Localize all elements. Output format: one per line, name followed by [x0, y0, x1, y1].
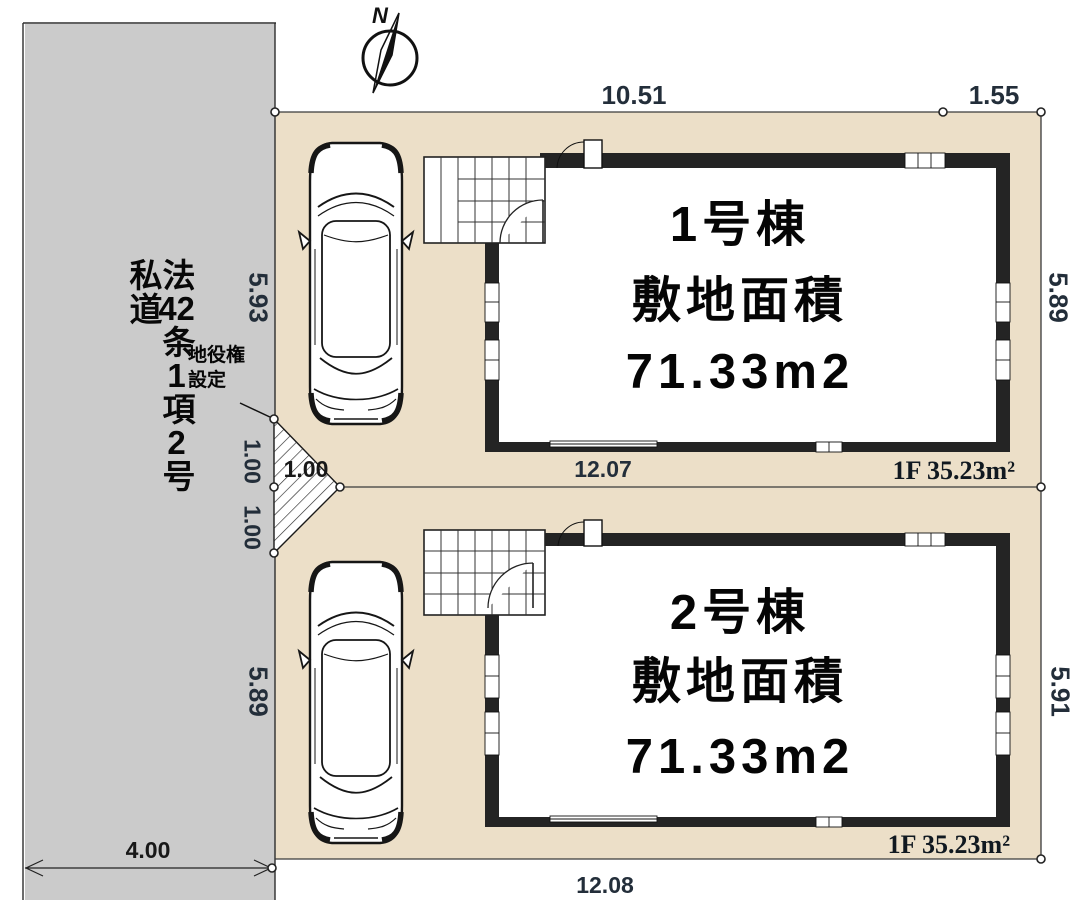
dim-site-bottom: 12.08: [555, 872, 655, 899]
lot2-area-value: 71.33m2: [440, 733, 1040, 782]
dim-top-main: 10.51: [584, 80, 684, 111]
car-1: [299, 143, 413, 424]
easement-label: 地役権 設定: [188, 344, 245, 393]
dim-lot1-east: 5.89: [1043, 248, 1074, 348]
dim-easement-side-2: 1.00: [239, 488, 266, 568]
north-label: N: [372, 3, 388, 29]
dim-road-width: 4.00: [98, 837, 198, 864]
lot2-area-caption: 敷地面積: [440, 658, 1040, 707]
dim-easement-width: 1.00: [266, 456, 346, 483]
dim-lot1-bottom: 12.07: [553, 456, 653, 483]
lot2-name: 2号棟: [440, 589, 1040, 638]
dim-top-offset: 1.55: [944, 80, 1044, 111]
car-2: [299, 562, 413, 843]
dim-lot1-west: 5.93: [243, 248, 274, 348]
lot1-area-value: 71.33m2: [440, 348, 1040, 397]
road-designation-label: 法42条1項2号私道: [127, 258, 193, 493]
lot2-floor-area: 1F 35.23m²: [810, 830, 1010, 860]
site-plan-canvas: N 10.51 1.55 5.93 5.89 5.89 5.91 1.00 1.…: [0, 0, 1090, 900]
lot1-floor-area: 1F 35.23m²: [815, 456, 1015, 486]
dim-lot2-west: 5.89: [243, 642, 274, 742]
lot1-name: 1号棟: [440, 201, 1040, 250]
dim-lot2-east: 5.91: [1045, 642, 1076, 742]
lot1-area-caption: 敷地面積: [440, 277, 1040, 326]
